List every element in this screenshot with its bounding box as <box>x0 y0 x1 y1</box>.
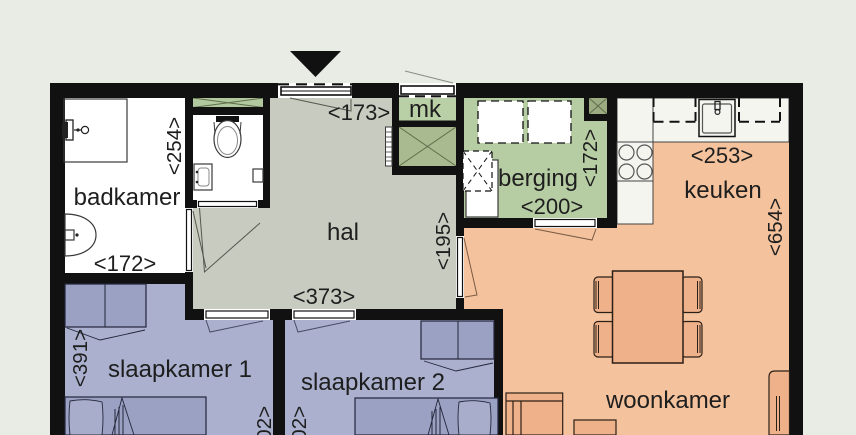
svg-text:badkamer: badkamer <box>74 184 181 211</box>
svg-text:<254>: <254> <box>163 117 186 175</box>
svg-text:keuken: keuken <box>684 177 761 204</box>
svg-text:slaapkamer 2: slaapkamer 2 <box>301 369 445 396</box>
svg-text:slaapkamer 1: slaapkamer 1 <box>108 356 252 383</box>
svg-text:<302>: <302> <box>288 406 311 435</box>
svg-text:<172>: <172> <box>94 251 156 276</box>
svg-text:<391>: <391> <box>69 329 92 387</box>
svg-text:<195>: <195> <box>432 212 455 270</box>
svg-text:mk: mk <box>409 96 442 123</box>
svg-text:woonkamer: woonkamer <box>605 387 730 414</box>
svg-text:<654>: <654> <box>764 198 787 256</box>
svg-text:<172>: <172> <box>579 129 602 187</box>
svg-text:<173>: <173> <box>328 100 390 125</box>
svg-text:hal: hal <box>327 219 359 246</box>
svg-text:<253>: <253> <box>691 143 753 168</box>
svg-text:<302>: <302> <box>253 406 276 435</box>
svg-text:berging: berging <box>498 165 578 192</box>
svg-text:<373>: <373> <box>293 284 355 309</box>
svg-text:<200>: <200> <box>521 194 583 219</box>
